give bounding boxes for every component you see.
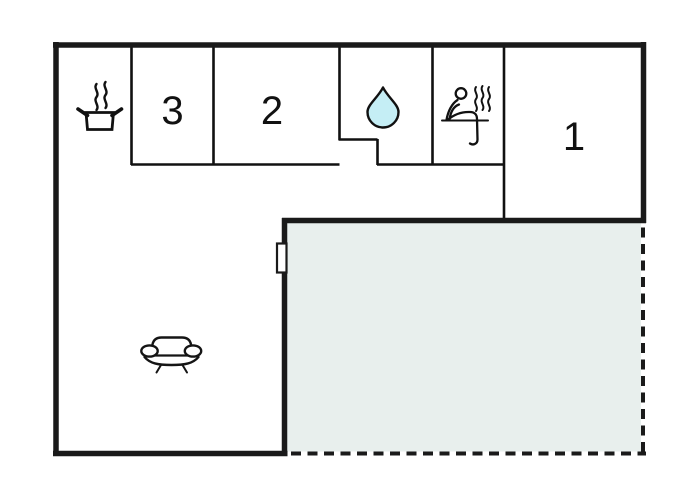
sauna-person-icon xyxy=(442,86,490,144)
sauna-steam-line xyxy=(482,86,484,110)
sofa-icon xyxy=(141,338,201,373)
floor-plan-canvas: 3 2 1 xyxy=(0,0,700,500)
terrace-area xyxy=(287,223,641,452)
sauna-steam-line xyxy=(475,87,477,111)
cooking-pot-icon xyxy=(78,82,122,130)
sauna-steam-line xyxy=(488,87,490,111)
pot-steam-line xyxy=(95,84,97,110)
room-3-label: 3 xyxy=(161,89,183,133)
water-drop-icon xyxy=(368,88,399,128)
pot-steam-line xyxy=(104,82,106,108)
floor-plan-drawing: 3 2 1 xyxy=(0,0,700,500)
sofa-bottom xyxy=(145,357,199,365)
room-1-label: 1 xyxy=(563,115,585,159)
person-leg xyxy=(448,112,478,144)
door-marker xyxy=(277,244,287,273)
room-2-label: 2 xyxy=(261,89,283,133)
sofa-armrest xyxy=(141,345,157,356)
interior-walls xyxy=(131,47,504,218)
pot-body xyxy=(86,113,114,130)
person-head xyxy=(456,88,467,99)
sofa-armrest xyxy=(185,345,201,356)
